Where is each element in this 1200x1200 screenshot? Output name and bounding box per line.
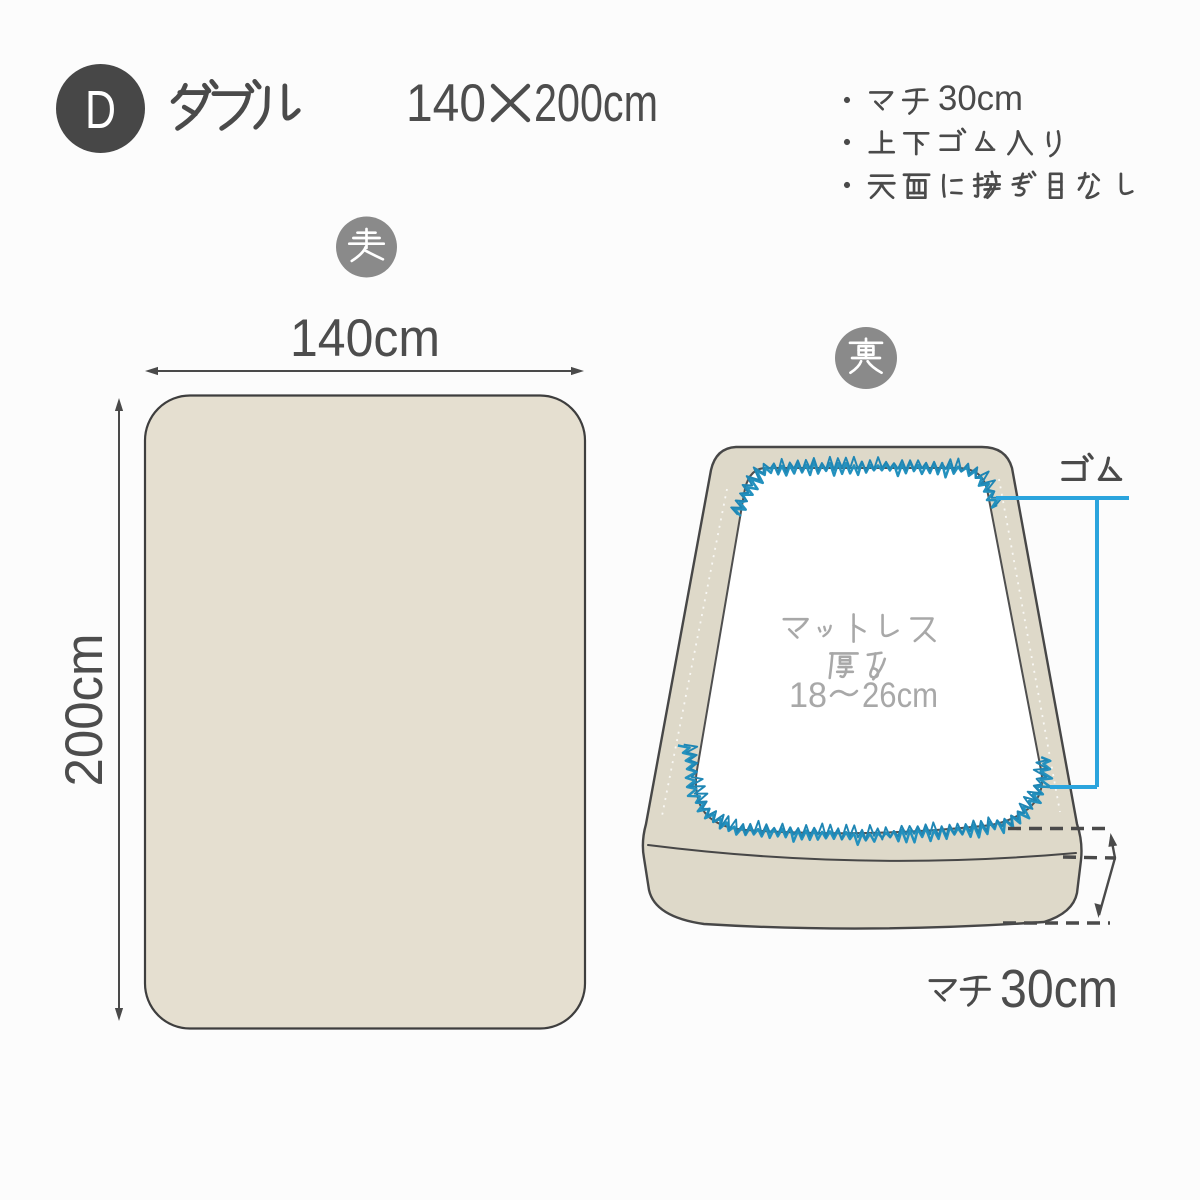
svg-text:200cm: 200cm <box>534 74 658 133</box>
svg-text:140cm: 140cm <box>290 309 440 368</box>
svg-text:200cm: 200cm <box>55 634 114 787</box>
svg-text:D: D <box>85 80 116 140</box>
svg-text:26cm: 26cm <box>862 676 938 715</box>
svg-text:18: 18 <box>789 676 827 715</box>
svg-text:30cm: 30cm <box>938 79 1023 118</box>
svg-text:30cm: 30cm <box>1000 959 1118 1019</box>
svg-text:140: 140 <box>406 74 486 133</box>
